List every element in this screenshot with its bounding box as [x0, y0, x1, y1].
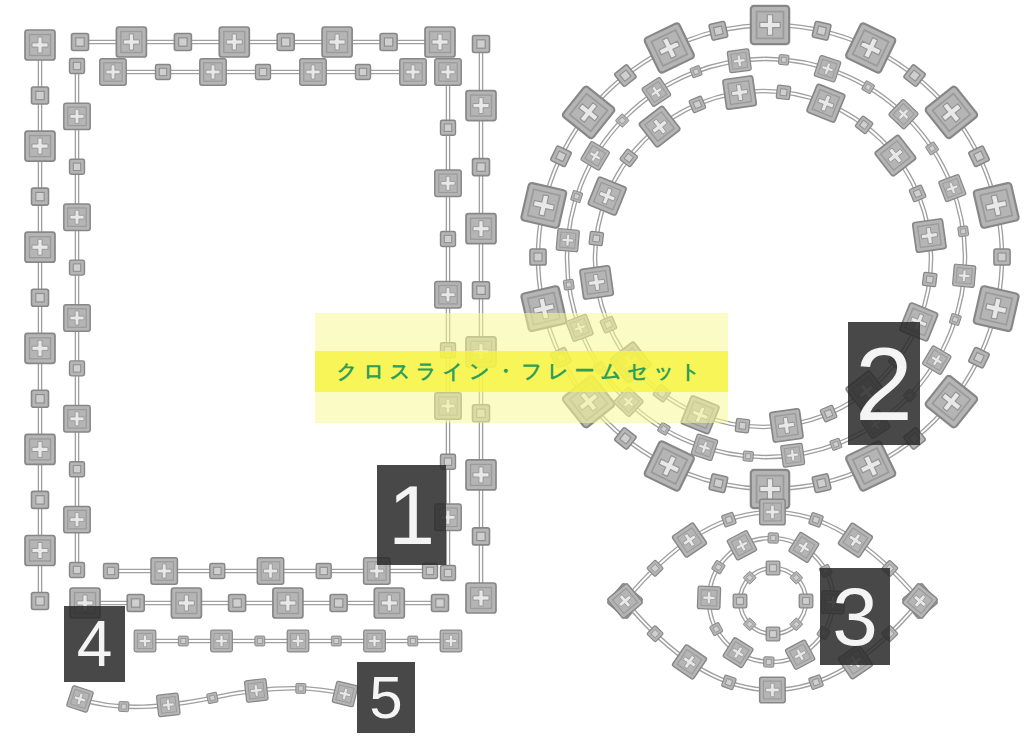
item-number: 4: [77, 612, 113, 676]
item-number-tag-5: 5: [357, 662, 415, 733]
product-title: クロスライン・フレームセット: [337, 358, 707, 385]
straight-line-sample: [134, 630, 462, 652]
product-preview-canvas: クロスライン・フレームセット 1 2 3 4 5: [0, 0, 1024, 747]
item-number: 3: [832, 576, 878, 658]
item-number-tag-1: 1: [377, 465, 446, 565]
item-number-tag-4: 4: [64, 606, 125, 682]
title-banner: クロスライン・フレームセット: [315, 351, 728, 392]
item-number-tag-3: 3: [820, 568, 890, 665]
item-number: 5: [369, 668, 402, 728]
item-number-tag-2: 2: [848, 322, 920, 445]
item-number: 1: [388, 473, 435, 557]
circle-frame: [521, 6, 1019, 508]
wavy-line-sample: [66, 679, 358, 717]
item-number: 2: [855, 332, 913, 436]
